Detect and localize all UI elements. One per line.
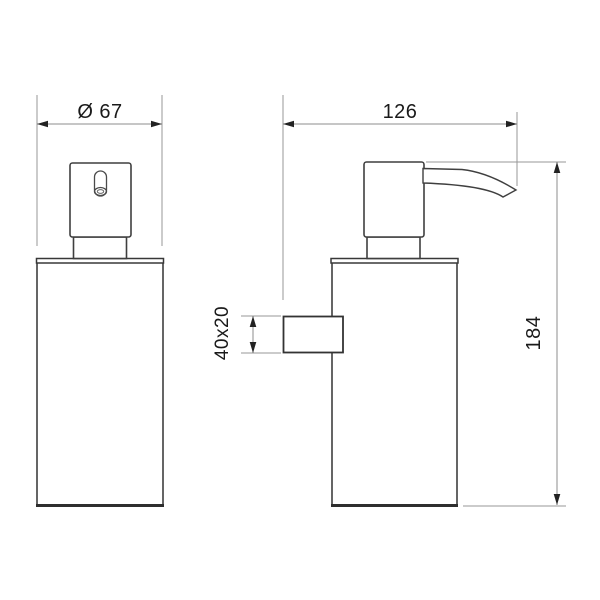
depth-arrow-left (283, 121, 294, 128)
side-pump-neck (367, 237, 420, 259)
front-width-label: Ø 67 (77, 101, 122, 123)
technical-drawing-page: Ø 67 126 (0, 0, 600, 600)
front-pump-head (70, 163, 131, 237)
side-pump-head (364, 162, 424, 237)
technical-drawing-canvas: Ø 67 126 (0, 0, 600, 600)
side-view (284, 112, 518, 506)
depth-label: 126 (383, 101, 418, 123)
height-label: 184 (523, 316, 545, 351)
bracket-label: 40x20 (212, 306, 233, 360)
wall-bracket (284, 317, 344, 353)
front-width-arrow-left (37, 121, 48, 128)
front-width-arrow-right (151, 121, 162, 128)
height-arrow-top (554, 162, 561, 173)
depth-arrow-right (506, 121, 517, 128)
height-arrow-bottom (554, 494, 561, 505)
side-body-outline (332, 262, 457, 505)
bracket-arrow-bottom (250, 342, 257, 353)
front-body-outline (37, 262, 163, 505)
front-view (36, 163, 164, 506)
bracket-arrow-top (250, 316, 257, 327)
front-pump-neck (74, 237, 127, 259)
dimension-bracket: 40x20 (212, 306, 281, 360)
side-pump-spout (423, 169, 516, 198)
